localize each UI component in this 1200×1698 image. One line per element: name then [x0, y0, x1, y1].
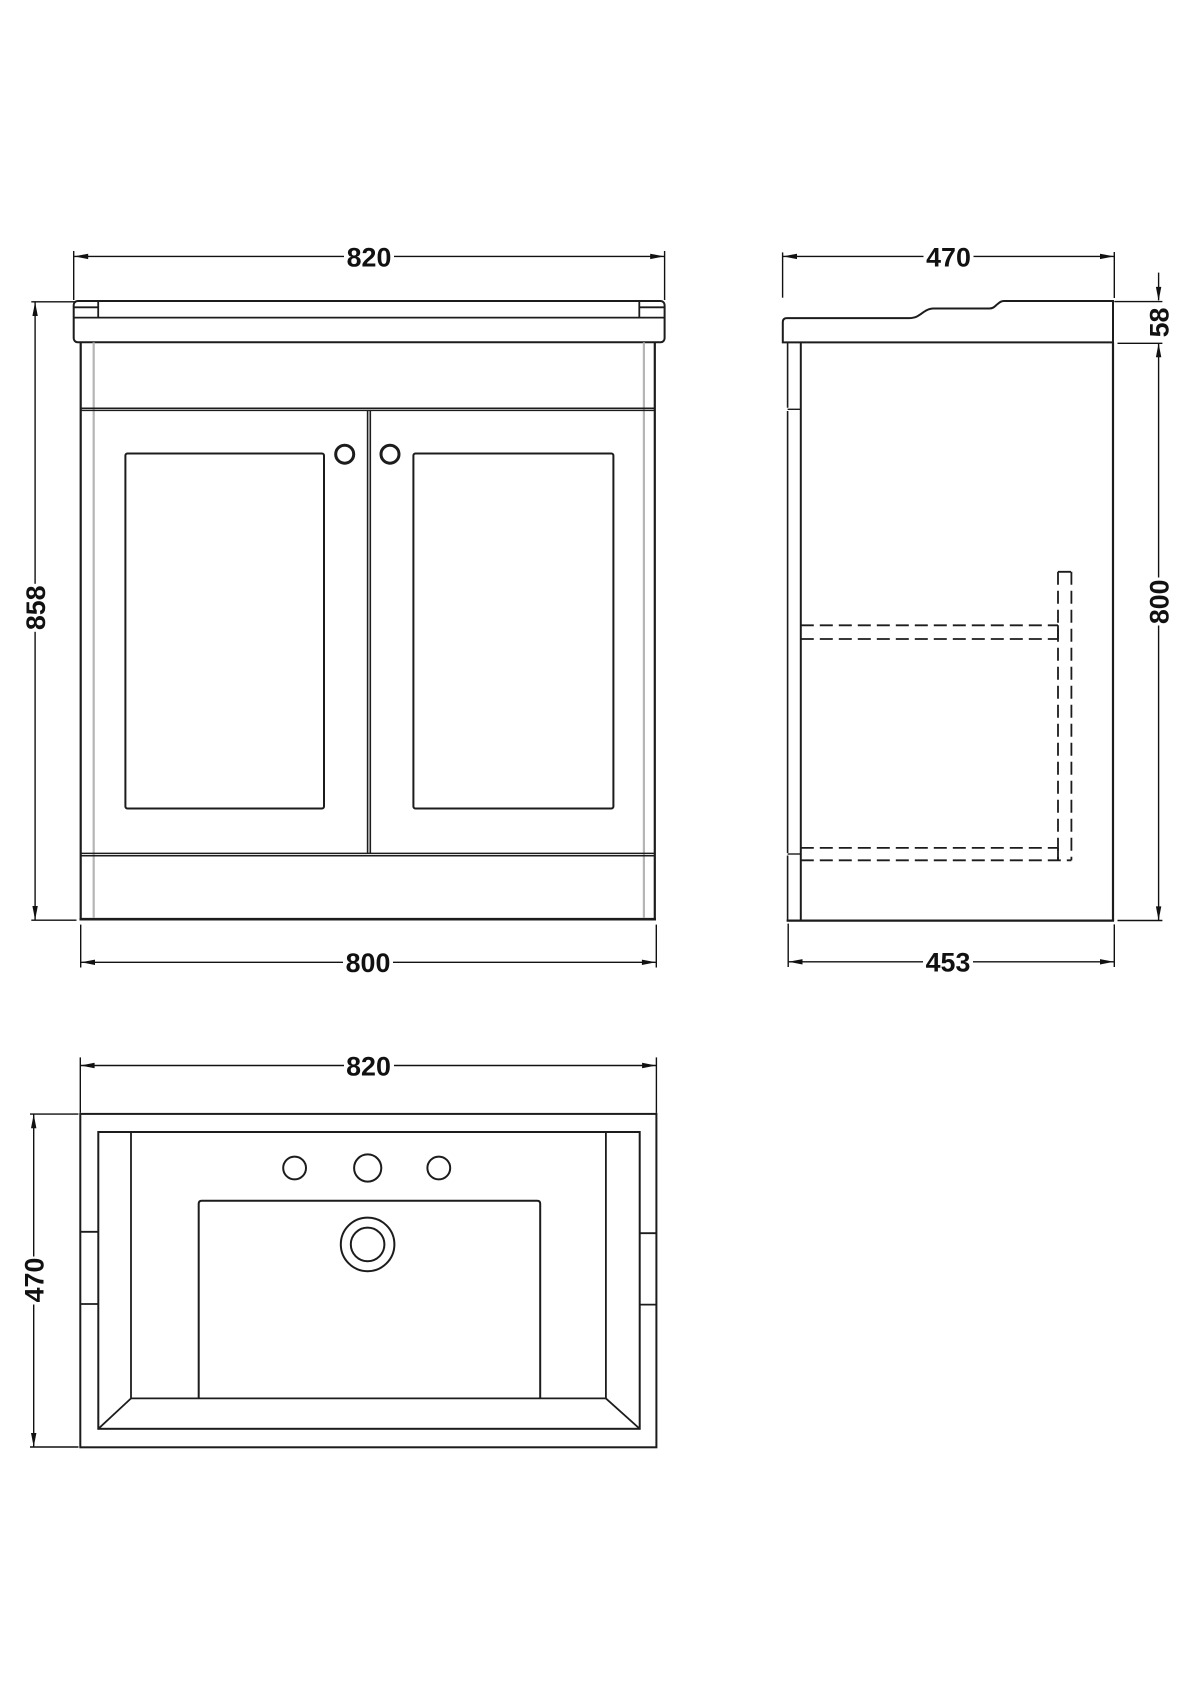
svg-text:453: 453: [926, 948, 971, 978]
svg-text:58: 58: [1145, 308, 1175, 338]
svg-text:820: 820: [346, 1051, 391, 1081]
svg-text:800: 800: [1145, 579, 1175, 624]
svg-text:858: 858: [21, 585, 51, 630]
svg-text:820: 820: [347, 242, 392, 272]
svg-text:470: 470: [926, 242, 971, 272]
svg-text:800: 800: [346, 948, 391, 978]
svg-text:470: 470: [20, 1258, 50, 1303]
